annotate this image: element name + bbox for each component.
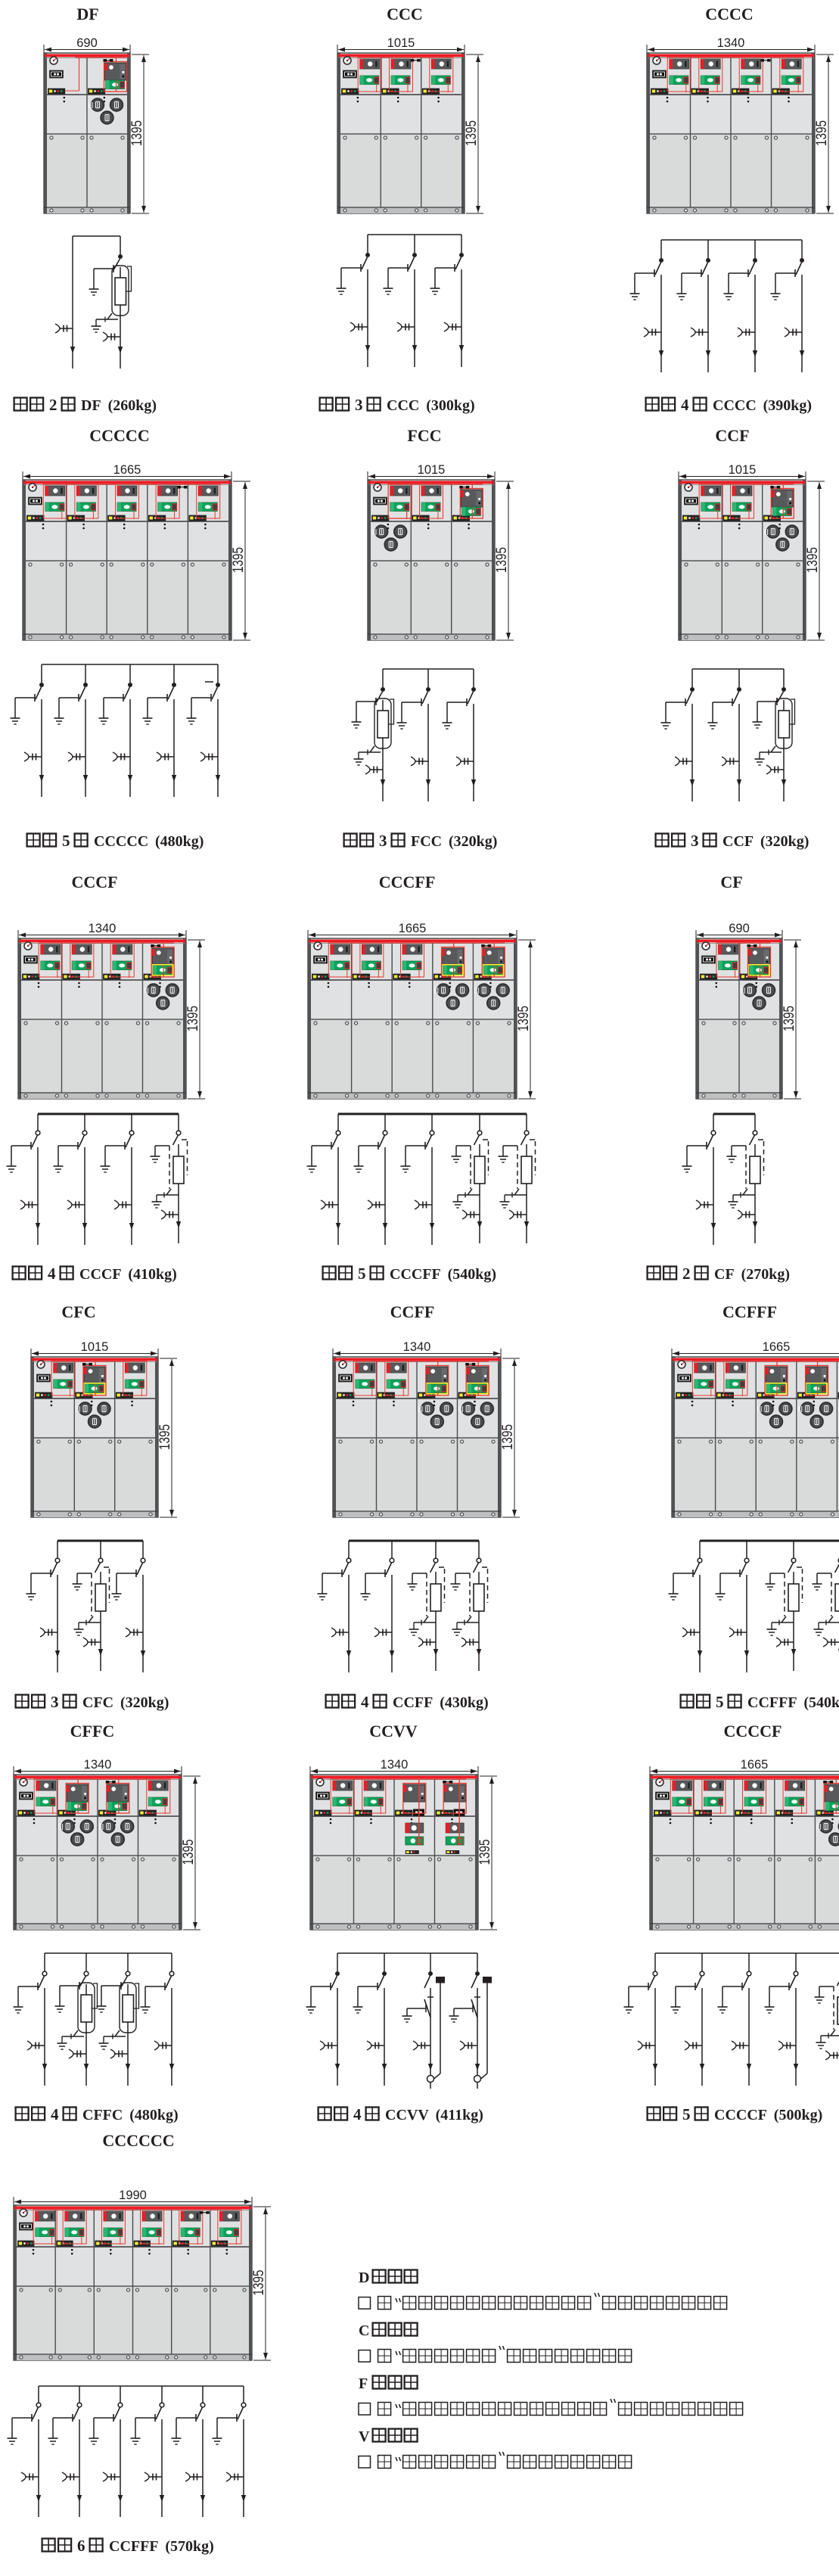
svg-text:1395: 1395 [782,1006,797,1031]
svg-text:(260kg): (260kg) [108,397,157,414]
svg-text:CFFC: CFFC [82,2107,123,2123]
svg-text:C: C [359,2322,369,2339]
svg-text:1395: 1395 [805,547,821,573]
svg-text:CCVV: CCVV [385,2107,429,2123]
svg-text:CCCCF: CCCCF [724,1722,782,1741]
svg-text:1395: 1395 [814,120,830,146]
svg-text:FCC: FCC [411,833,442,850]
svg-text:1395: 1395 [464,120,480,146]
svg-text:5: 5 [62,832,70,850]
svg-text:V: V [359,2428,370,2445]
svg-text:DF: DF [81,397,101,414]
svg-text:CCFFF: CCFFF [109,2538,159,2555]
svg-text:1395: 1395 [494,547,510,573]
svg-text:FCC: FCC [407,426,441,445]
svg-text:CF: CF [714,1266,735,1283]
svg-text:CCVV: CCVV [369,1722,418,1741]
svg-text:CCCFF: CCCFF [390,1266,441,1283]
svg-text:CFC: CFC [82,1694,113,1711]
svg-text:4: 4 [353,2105,362,2123]
svg-text:1395: 1395 [231,547,247,573]
svg-text:1990: 1990 [119,2189,147,2202]
svg-text:3: 3 [355,396,363,414]
svg-text:CCFFF: CCFFF [722,1302,777,1321]
svg-text:3: 3 [51,1693,59,1711]
svg-text:(570kg): (570kg) [165,2538,213,2555]
svg-text:CCCCCC: CCCCCC [102,2131,174,2150]
svg-text:2: 2 [49,396,57,414]
svg-text:CFFC: CFFC [70,1722,115,1741]
svg-text:3: 3 [379,832,387,850]
svg-text:1395: 1395 [516,1006,532,1031]
svg-text:1015: 1015 [729,463,757,477]
svg-text:(390kg): (390kg) [763,397,812,414]
svg-text:(480kg): (480kg) [129,2107,178,2123]
svg-text:1395: 1395 [129,120,145,146]
svg-text:CCF: CCF [715,426,749,445]
svg-text:690: 690 [76,36,98,50]
svg-text:690: 690 [729,922,750,935]
svg-text:1665: 1665 [741,1758,769,1772]
svg-text:1665: 1665 [113,463,141,477]
svg-text:F: F [359,2375,368,2392]
svg-text:1665: 1665 [399,922,427,935]
svg-text:(480kg): (480kg) [155,833,204,850]
svg-text:5: 5 [716,1693,724,1711]
svg-text:1395: 1395 [500,1424,516,1450]
svg-text:5: 5 [358,1265,366,1283]
svg-text:CCCFF: CCCFF [379,873,436,891]
svg-text:1395: 1395 [181,1840,197,1865]
svg-text:5: 5 [682,2105,691,2123]
svg-text:1340: 1340 [84,1758,112,1772]
svg-text:1340: 1340 [717,36,745,50]
svg-text:CCCCC: CCCCC [89,426,149,445]
svg-text:1340: 1340 [381,1758,409,1772]
svg-text:4: 4 [48,1265,56,1283]
svg-text:(540kg): (540kg) [803,1694,839,1711]
svg-text:CCCC: CCCC [713,397,757,414]
svg-text:CCFF: CCFF [390,1302,435,1321]
svg-text:CFC: CFC [61,1302,95,1321]
svg-text:(430kg): (430kg) [440,1694,488,1711]
svg-text:(410kg): (410kg) [128,1266,176,1283]
svg-text:(540kg): (540kg) [448,1266,496,1283]
svg-text:1395: 1395 [477,1840,493,1865]
svg-text:1340: 1340 [89,922,117,935]
svg-text:CF: CF [720,873,742,891]
svg-text:CCFF: CCFF [393,1694,433,1711]
svg-text:4: 4 [361,1693,369,1711]
svg-text:(320kg): (320kg) [449,833,497,850]
svg-text:(320kg): (320kg) [120,1694,169,1711]
svg-text:1395: 1395 [251,2270,267,2296]
svg-text:1395: 1395 [185,1006,201,1031]
svg-text:DF: DF [76,5,98,23]
svg-text:4: 4 [51,2105,59,2123]
svg-text:CCCF: CCCF [71,873,117,891]
svg-text:1340: 1340 [403,1340,431,1354]
svg-text:1665: 1665 [763,1340,791,1354]
svg-text:CCCCC: CCCCC [94,833,148,850]
svg-text:CCCC: CCCC [705,5,754,23]
svg-text:D: D [359,2270,369,2286]
svg-text:CCCF: CCCF [79,1266,122,1283]
svg-text:CCFFF: CCFFF [747,1694,797,1711]
svg-text:CCC: CCC [387,5,423,23]
svg-text:2: 2 [682,1265,691,1283]
svg-text:1015: 1015 [81,1340,109,1354]
svg-text:(411kg): (411kg) [436,2107,483,2123]
svg-text:3: 3 [691,832,699,850]
svg-text:(270kg): (270kg) [741,1266,790,1283]
svg-text:1395: 1395 [157,1424,173,1450]
svg-text:(300kg): (300kg) [426,397,474,414]
svg-text:(320kg): (320kg) [760,833,809,850]
svg-text:4: 4 [681,396,689,414]
svg-text:6: 6 [77,2537,85,2555]
svg-text:CCC: CCC [387,397,419,414]
svg-text:CCCCF: CCCCF [714,2107,767,2123]
svg-text:(500kg): (500kg) [774,2107,822,2123]
svg-text:1015: 1015 [418,463,446,477]
svg-text:CCF: CCF [722,833,754,850]
svg-text:1015: 1015 [387,36,415,50]
